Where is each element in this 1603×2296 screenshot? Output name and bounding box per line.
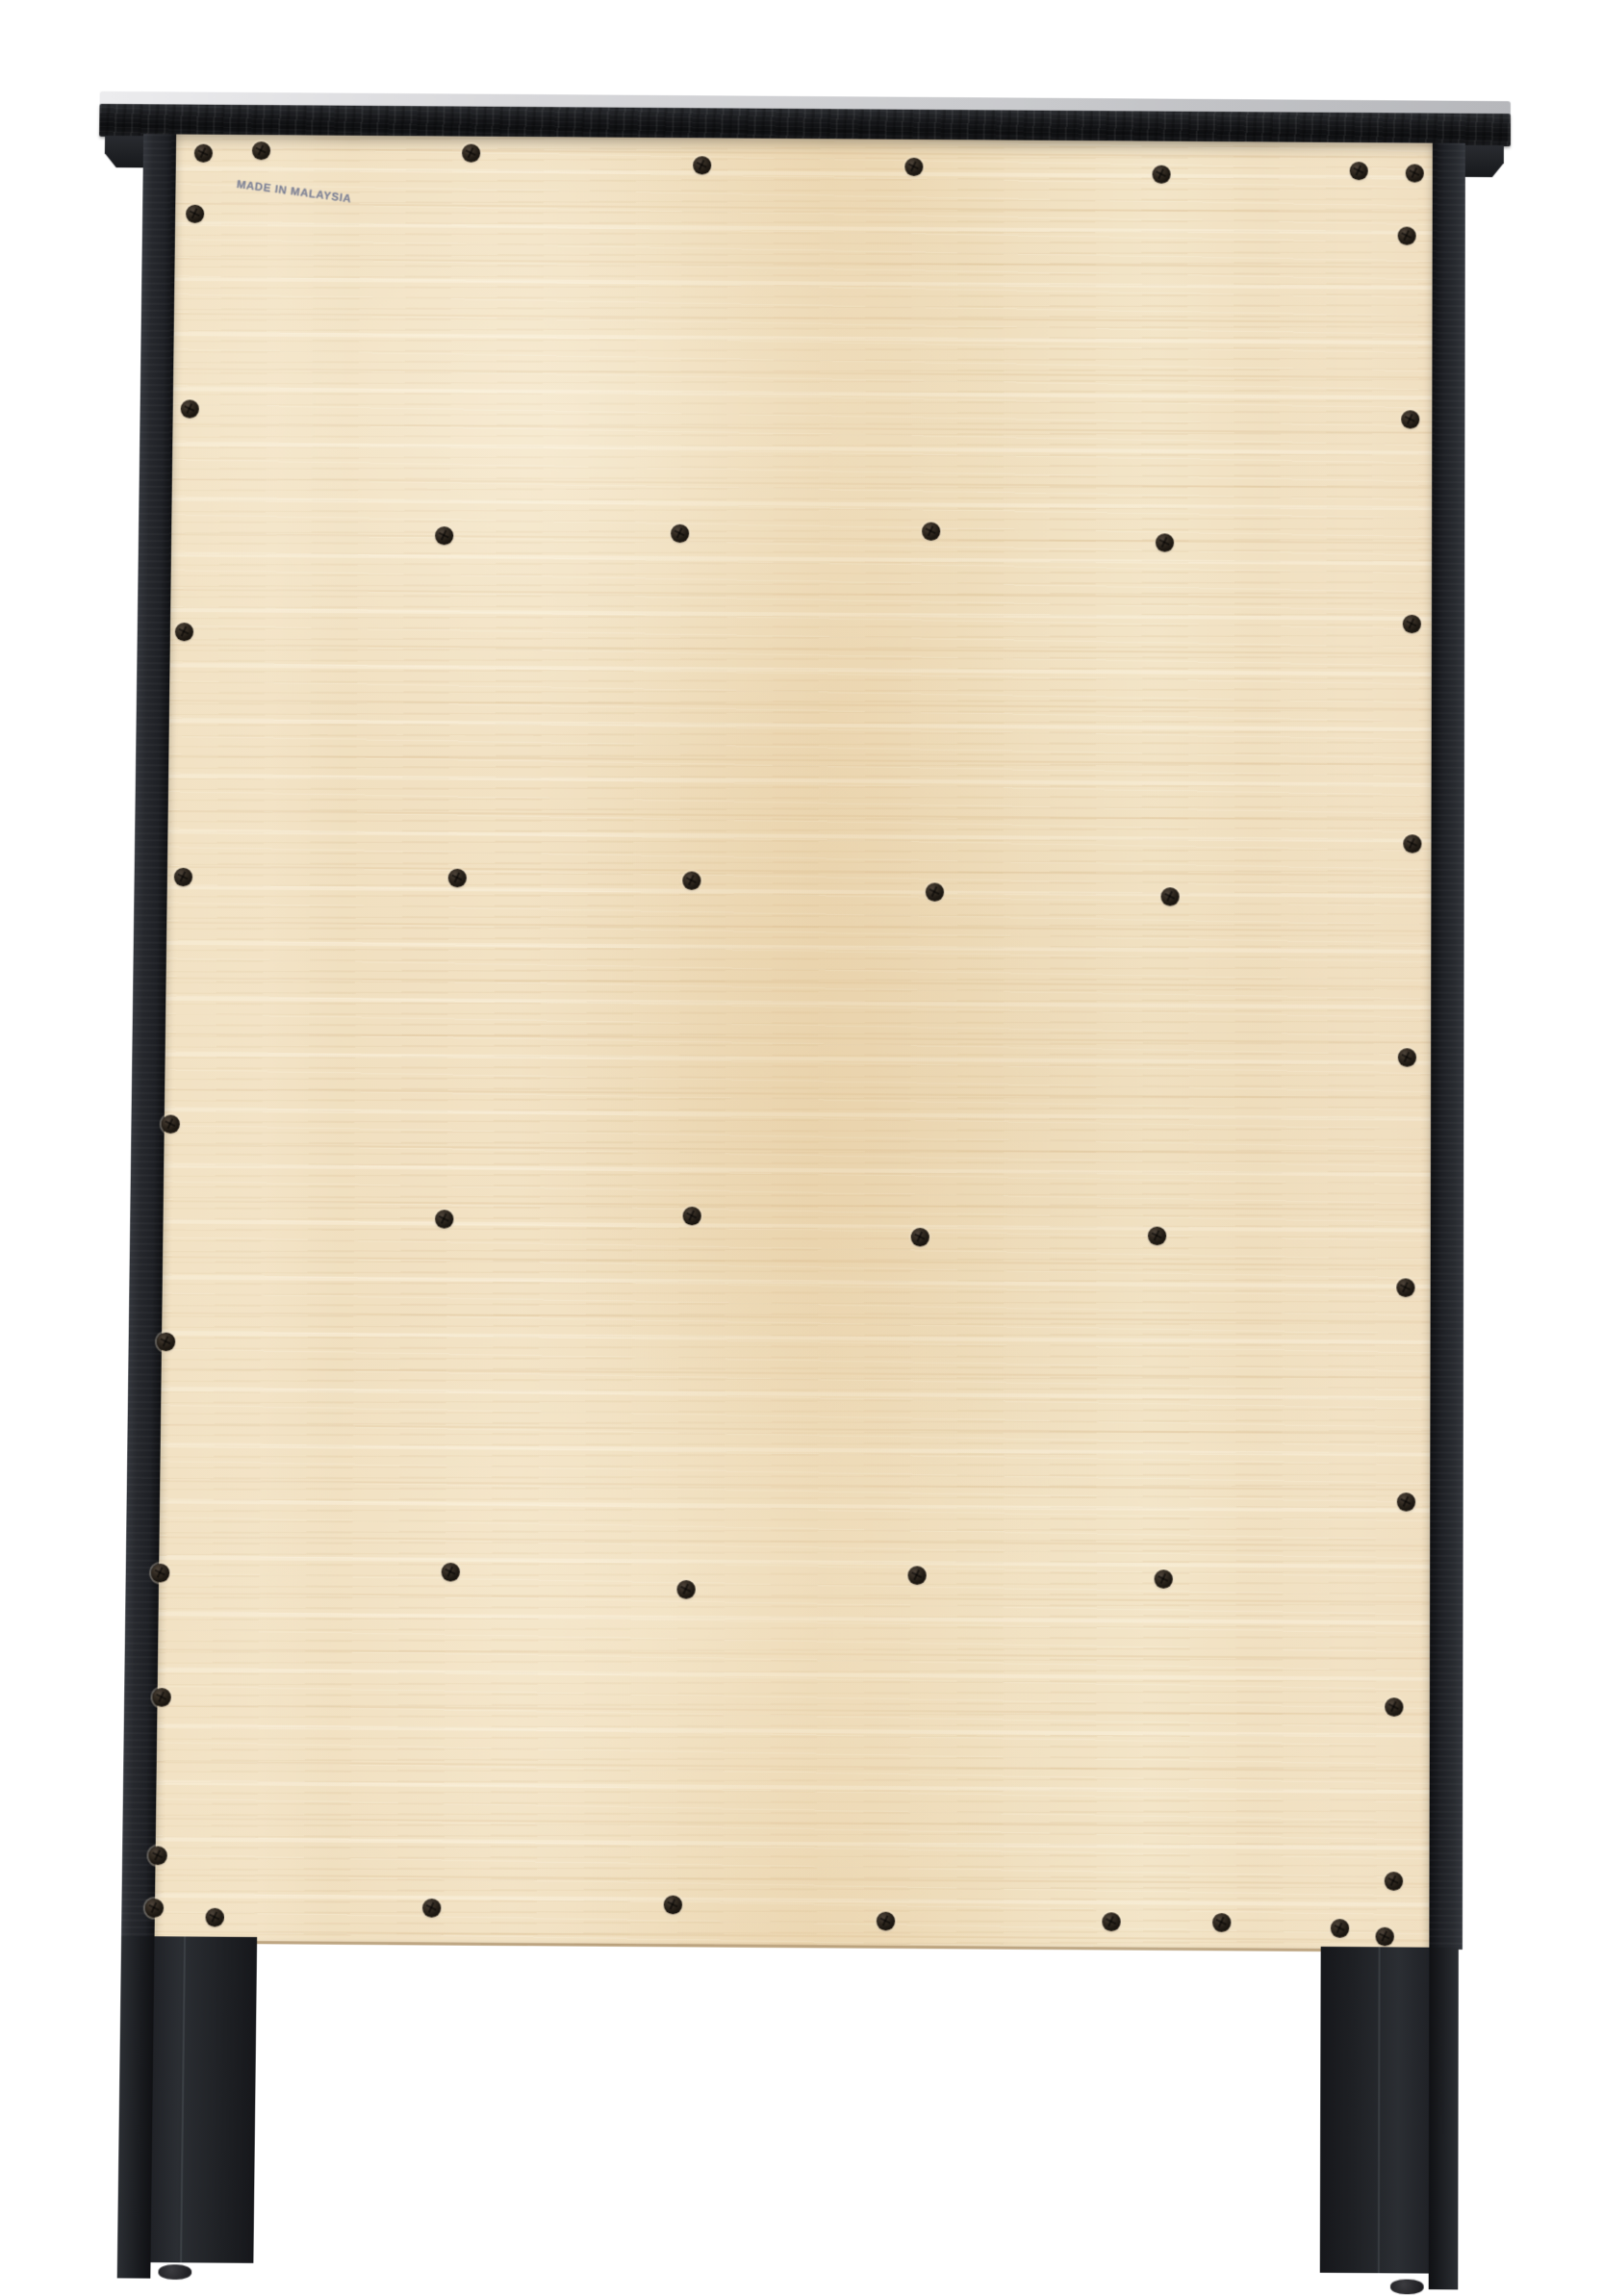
screw-head-icon [462,143,480,162]
screw-head-icon [1152,165,1170,183]
screw-head-icon [174,623,192,641]
screw-head-icon [150,1563,168,1582]
right-leg-seam [1378,1947,1381,2273]
screw-head-icon [1385,1697,1403,1717]
screw-head-icon [1384,1872,1402,1891]
screw-head-icon [1349,162,1367,180]
left-leg [150,1936,257,2263]
screw-head-icon [1396,1492,1414,1512]
screw-head-icon [1397,1048,1415,1066]
screw-head-icon [1147,1226,1165,1244]
screw-head-icon [421,1898,440,1917]
screw-head-icon [1155,533,1173,551]
left-leg-outer-strip [117,1936,155,2279]
cabinet-back: MADE IN MALAYSIA [0,0,1603,2296]
screw-head-icon [156,1332,174,1351]
screw-head-icon [447,868,466,886]
right-leg [1320,1947,1430,2274]
screw-head-icon [876,1911,894,1930]
screw-head-icon [1403,834,1421,853]
screw-head-icon [1402,614,1420,632]
screw-head-icon [663,1895,681,1914]
left-leg-seam [180,1936,186,2262]
screw-head-icon [186,204,204,222]
screw-head-icon [180,399,198,418]
screw-head-icon [1401,410,1419,428]
screw-head-icon [161,1114,179,1133]
screw-head-icon [173,867,191,885]
screw-head-icon [1375,1926,1393,1946]
screw-head-icon [148,1846,167,1865]
screw-head-icon [251,141,269,160]
screw-head-icon [904,157,923,175]
screw-head-icon [1154,1569,1172,1589]
screw-head-icon [910,1227,929,1245]
screw-head-icon [441,1562,459,1581]
screw-head-icon [682,871,700,889]
right-foot-glide [1390,2280,1424,2295]
screw-head-icon [682,1206,700,1224]
screw-head-icon [205,1907,224,1926]
screw-head-icon [671,523,689,542]
screw-head-icon [1405,164,1423,182]
screw-head-icon [1102,1912,1120,1931]
left-foot-glide [158,2264,191,2280]
screw-head-icon [435,526,453,545]
screw-head-icon [193,143,212,162]
screw-head-icon [435,1210,453,1228]
screw-head-icon [693,156,711,174]
screw-head-icon [1330,1919,1348,1938]
screw-head-icon [1212,1913,1231,1932]
right-leg-outer-strip [1429,1948,1459,2290]
screw-head-icon [922,522,940,540]
screw-head-icon [1160,887,1179,906]
screw-head-icon [676,1580,695,1599]
product-photo: MADE IN MALAYSIA [0,0,1603,2296]
screw-head-icon [1396,1278,1414,1297]
screw-head-icon [144,1898,164,1917]
screw-head-icon [1397,226,1415,244]
screw-head-icon [907,1566,926,1585]
screw-head-icon [152,1688,170,1707]
screw-head-icon [925,882,943,901]
